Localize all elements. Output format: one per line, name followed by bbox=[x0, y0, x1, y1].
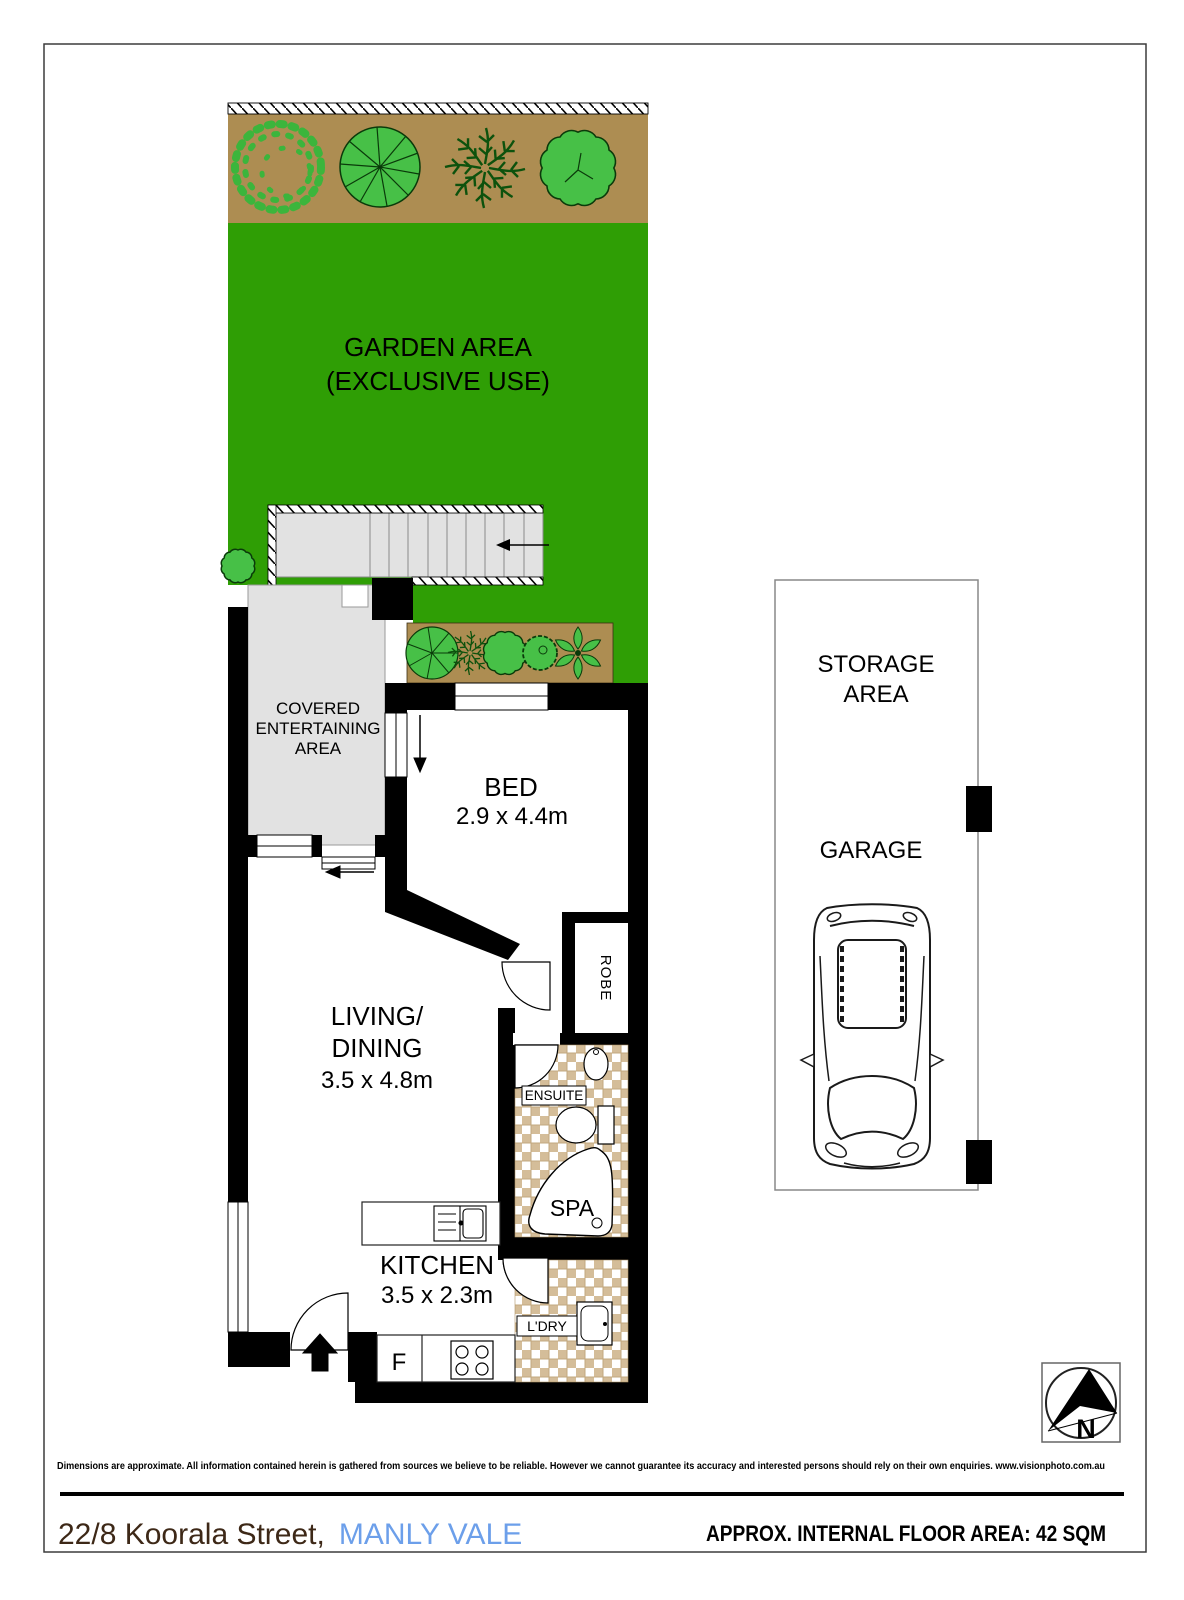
living-dims: 3.5 x 4.8m bbox=[321, 1067, 433, 1094]
covered-label-line3: AREA bbox=[295, 739, 342, 758]
covered-label-line2: ENTERTAINING bbox=[256, 719, 381, 738]
ensuite: ENSUITE SPA bbox=[515, 1045, 628, 1237]
garden-bush-icon bbox=[221, 549, 254, 582]
living-label-line2: DINING bbox=[332, 1033, 423, 1063]
planter-tree-icon bbox=[406, 627, 458, 679]
storage-garage: STORAGE AREA GARAGE bbox=[775, 580, 992, 1190]
stairs bbox=[268, 505, 549, 585]
garage-pillar-bottom bbox=[966, 1140, 992, 1184]
sliding-door-leaf bbox=[322, 857, 375, 869]
kitchen: KITCHEN 3.5 x 2.3m F bbox=[362, 1202, 515, 1382]
footer-divider bbox=[60, 1492, 1124, 1496]
kitchen-dims: 3.5 x 2.3m bbox=[381, 1282, 493, 1309]
garage-pillar-top bbox=[966, 786, 992, 832]
laundry: L'DRY bbox=[503, 1258, 628, 1382]
ensuite-label: ENSUITE bbox=[525, 1088, 584, 1103]
covered-label-line1: COVERED bbox=[276, 699, 360, 718]
floor-area-text: APPROX. INTERNAL FLOOR AREA: 42 SQM bbox=[706, 1521, 1106, 1546]
disclaimer-text: Dimensions are approximate. All informat… bbox=[57, 1460, 1105, 1472]
address-suburb: MANLY VALE bbox=[339, 1518, 522, 1551]
step-notch bbox=[342, 585, 368, 607]
laundry-tub-icon bbox=[577, 1302, 612, 1345]
car-icon bbox=[801, 904, 943, 1168]
bed-side-window bbox=[385, 713, 407, 777]
spa-label: SPA bbox=[550, 1195, 595, 1221]
storage-label-line1: STORAGE bbox=[818, 651, 935, 678]
covered-entertaining-area: COVERED ENTERTAINING AREA bbox=[248, 585, 385, 845]
fence-hatch bbox=[228, 103, 648, 114]
planter-shrub-icon bbox=[523, 636, 557, 670]
toilet-icon bbox=[556, 1106, 614, 1144]
floorplan-page: GARDEN AREA (EXCLUSIVE USE) bbox=[0, 0, 1184, 1600]
laundry-label: L'DRY bbox=[527, 1318, 567, 1334]
planter-bush-icon bbox=[484, 632, 527, 675]
garage-label: GARAGE bbox=[820, 837, 923, 864]
garden-label-line2: (EXCLUSIVE USE) bbox=[326, 366, 550, 396]
living-room: LIVING/ DINING 3.5 x 4.8m bbox=[321, 1001, 433, 1094]
address-street: 22/8 Koorala Street, bbox=[58, 1518, 325, 1551]
living-label-line1: LIVING/ bbox=[331, 1001, 424, 1031]
compass: N bbox=[1042, 1363, 1120, 1444]
compass-label: N bbox=[1076, 1414, 1096, 1444]
floorplan-drawing: GARDEN AREA (EXCLUSIVE USE) bbox=[0, 0, 1184, 1600]
bed-label: BED bbox=[484, 772, 537, 802]
fridge-label: F bbox=[392, 1349, 407, 1376]
planter-strip bbox=[406, 623, 613, 683]
address-text: 22/8 Koorala Street,MANLY VALE bbox=[58, 1518, 522, 1551]
sliding-door-panel bbox=[257, 835, 312, 857]
robe-label: ROBE bbox=[597, 955, 614, 1002]
tree-icon bbox=[340, 127, 420, 207]
living-side-window bbox=[228, 1202, 248, 1332]
basin-icon bbox=[584, 1048, 608, 1080]
kitchen-label: KITCHEN bbox=[380, 1250, 494, 1280]
bed-dims: 2.9 x 4.4m bbox=[456, 803, 568, 830]
kitchen-bench bbox=[362, 1202, 500, 1245]
bush-icon bbox=[541, 131, 616, 206]
storage-label-line2: AREA bbox=[843, 681, 908, 708]
garden-label-line1: GARDEN AREA bbox=[344, 332, 532, 362]
bed-top-window bbox=[455, 683, 548, 710]
